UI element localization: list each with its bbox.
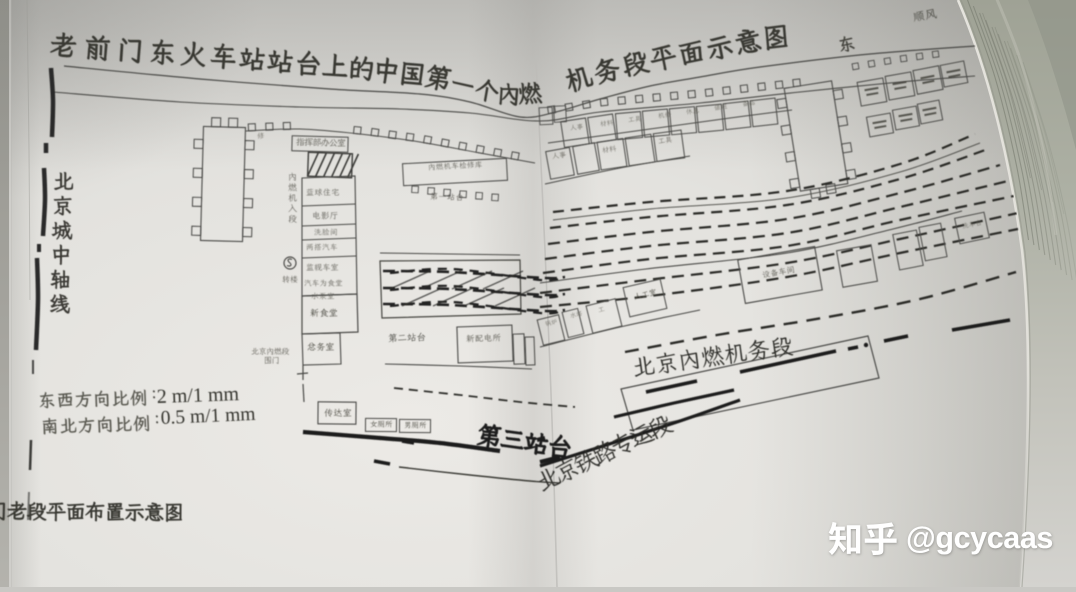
svg-text:@gcycaas: @gcycaas [906,521,1053,555]
svg-text:0.5 m/1 mm: 0.5 m/1 mm [160,404,256,429]
